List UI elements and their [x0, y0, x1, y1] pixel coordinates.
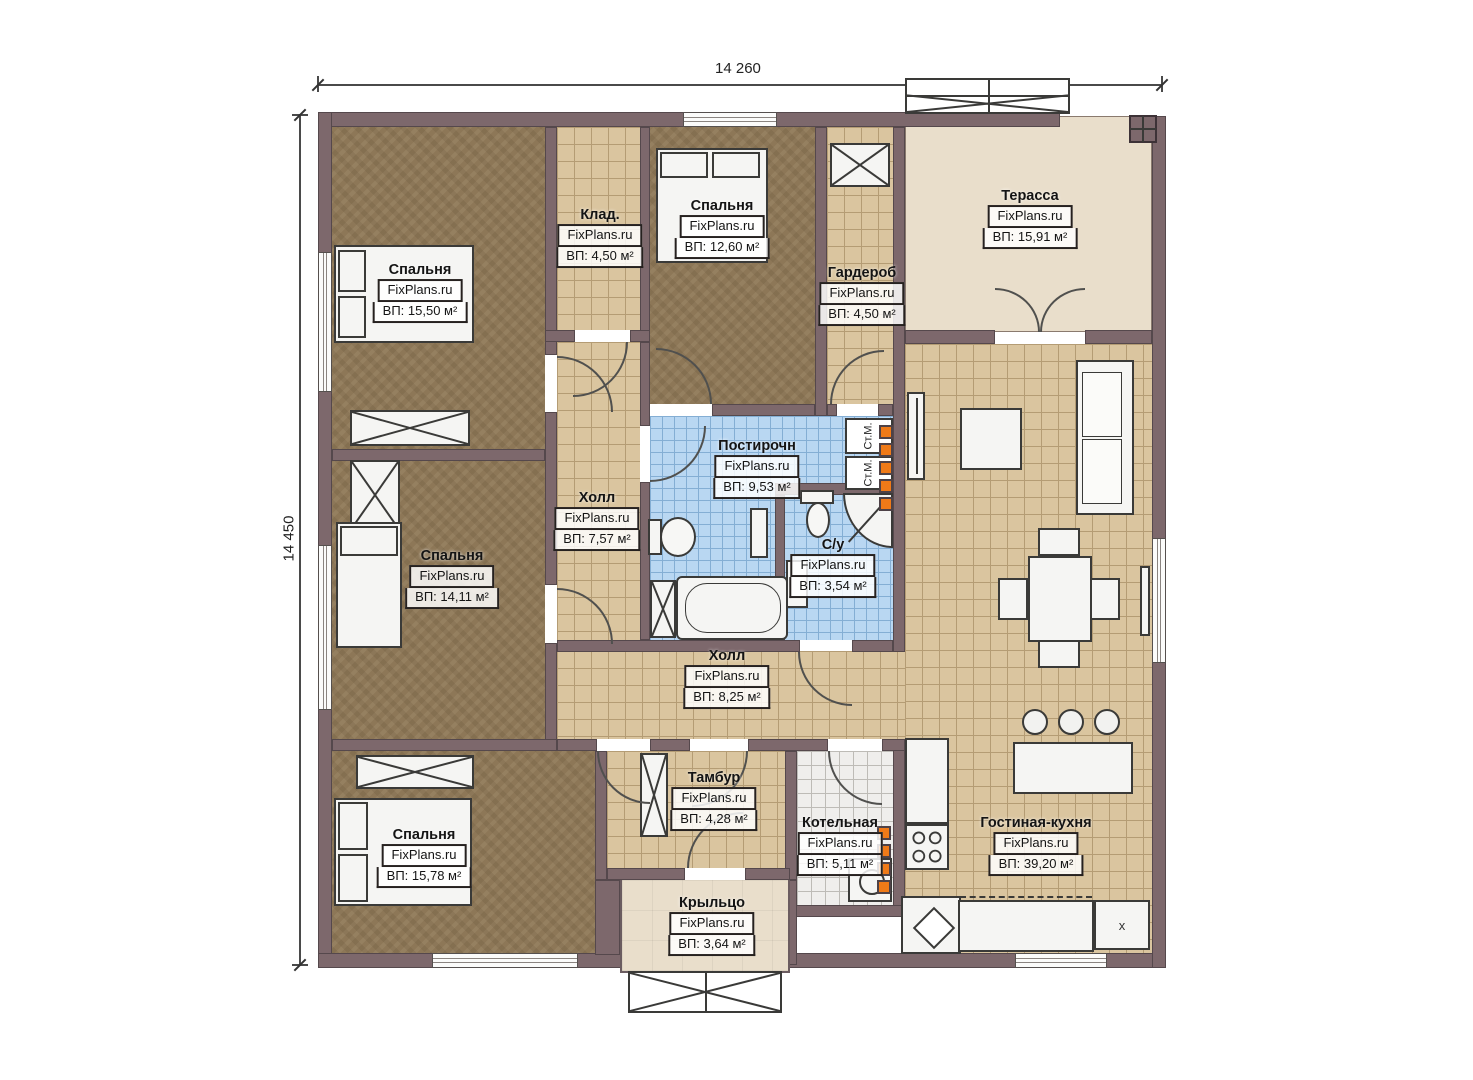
chair	[1090, 578, 1120, 620]
room-name: Спальня	[389, 261, 452, 279]
pillow	[338, 854, 368, 902]
terrace-stairs	[905, 78, 1070, 114]
room-name: Спальня	[393, 826, 456, 844]
room-area: ВП: 4,28 м²	[670, 810, 757, 831]
wardrobe-box	[830, 143, 890, 187]
room-name: Клад.	[580, 206, 619, 224]
room-label-boiler: Котельная FixPlans.ru ВП: 5,11 м²	[797, 814, 883, 876]
cabinet-x: x	[1094, 900, 1150, 950]
room-area: ВП: 4,50 м²	[556, 247, 643, 268]
room-name: Крыльцо	[679, 894, 745, 912]
wardrobe-box	[350, 410, 470, 446]
wall-interior	[332, 739, 557, 751]
room-name: Холл	[579, 489, 615, 507]
kitchen-island	[1013, 742, 1133, 794]
corner-shelf	[650, 580, 676, 638]
room-area: ВП: 15,78 м²	[377, 867, 472, 888]
toilet-bowl	[660, 517, 696, 557]
room-label-porch: Крыльцо FixPlans.ru ВП: 3,64 м²	[668, 894, 755, 956]
watermark: FixPlans.ru	[797, 832, 882, 855]
room-label-bedroom-1: Спальня FixPlans.ru ВП: 15,50 м²	[373, 261, 468, 323]
window-bedroom-1	[318, 252, 332, 392]
wall-interior	[545, 127, 557, 355]
room-area: ВП: 5,11 м²	[797, 855, 883, 876]
wall-interior	[882, 739, 905, 751]
window-bedroom-4	[432, 953, 578, 968]
washer-label: Ст.М.	[863, 422, 875, 449]
bar-stool	[1022, 709, 1048, 735]
washer-label: Ст.М.	[863, 459, 875, 486]
room-label-bedroom-4: Спальня FixPlans.ru ВП: 15,78 м²	[377, 826, 472, 888]
wall-interior	[630, 330, 650, 342]
room-area: ВП: 3,54 м²	[789, 577, 876, 598]
room-area: ВП: 3,64 м²	[668, 935, 755, 956]
room-area: ВП: 8,25 м²	[683, 688, 770, 709]
pillow	[340, 526, 398, 556]
room-label-hall-1: Холл FixPlans.ru ВП: 7,57 м²	[553, 489, 640, 551]
room-name: Спальня	[421, 547, 484, 565]
radiator	[1140, 566, 1150, 636]
chair	[998, 578, 1028, 620]
kitchen-counter	[905, 738, 949, 824]
room-name: Гардероб	[828, 264, 897, 282]
room-name: Котельная	[802, 814, 878, 832]
room-label-living-kitchen: Гостиная-кухня FixPlans.ru ВП: 39,20 м²	[980, 814, 1091, 876]
wall-interior	[545, 643, 557, 751]
pillow	[338, 296, 366, 338]
radiator	[907, 392, 925, 480]
toilet-bowl	[806, 502, 830, 538]
room-label-bedroom-2: Спальня FixPlans.ru ВП: 12,60 м²	[675, 197, 770, 259]
room-area: ВП: 7,57 м²	[553, 530, 640, 551]
room-area: ВП: 14,11 м²	[405, 588, 499, 609]
watermark: FixPlans.ru	[993, 832, 1078, 855]
wall-interior	[878, 404, 893, 416]
room-name: Терасса	[1001, 187, 1059, 205]
wall-interior	[712, 404, 815, 416]
wall-interior	[607, 868, 685, 880]
dimension-height-label: 14 450	[280, 516, 297, 562]
sofa	[1076, 360, 1134, 515]
watermark: FixPlans.ru	[554, 507, 639, 530]
wall-interior	[640, 482, 650, 640]
wall-interior	[650, 739, 690, 751]
dimension-line-left	[299, 115, 301, 966]
room-name: С/у	[822, 536, 845, 554]
chair	[1038, 528, 1080, 556]
pillow	[712, 152, 760, 178]
watermark: FixPlans.ru	[377, 279, 462, 302]
room-name: Постирочн	[718, 437, 796, 455]
room-area: ВП: 39,20 м²	[989, 855, 1084, 876]
wall-interior	[745, 868, 790, 880]
heat-dot	[879, 497, 893, 511]
pillow	[338, 802, 368, 850]
room-area: ВП: 12,60 м²	[675, 238, 770, 259]
room-area: ВП: 9,53 м²	[713, 478, 800, 499]
wall-interior	[893, 127, 905, 652]
wall-interior	[893, 739, 905, 917]
watermark: FixPlans.ru	[987, 205, 1072, 228]
room-label-bedroom-3: Спальня FixPlans.ru ВП: 14,11 м²	[405, 547, 499, 609]
window-bedroom-3	[318, 545, 332, 710]
coffee-table	[960, 408, 1022, 470]
room-label-storage: Клад. FixPlans.ru ВП: 4,50 м²	[556, 206, 643, 268]
room-label-terrace: Терасса FixPlans.ru ВП: 15,91 м²	[983, 187, 1078, 249]
window-living-room	[1152, 538, 1166, 663]
wall-terrace	[1085, 330, 1152, 344]
room-label-bathroom: С/у FixPlans.ru ВП: 3,54 м²	[789, 536, 876, 598]
watermark: FixPlans.ru	[679, 215, 764, 238]
room-label-wardrobe: Гардероб FixPlans.ru ВП: 4,50 м²	[818, 264, 905, 326]
watermark: FixPlans.ru	[684, 665, 769, 688]
cabinet-x-label: x	[1119, 918, 1126, 933]
wall-interior	[748, 739, 828, 751]
watermark: FixPlans.ru	[381, 844, 466, 867]
bathtub	[676, 576, 788, 640]
room-name: Гостиная-кухня	[980, 814, 1091, 832]
chair	[1038, 640, 1080, 668]
wall-interior	[595, 880, 620, 955]
dimension-width-label: 14 260	[715, 60, 761, 77]
room-name: Тамбур	[688, 769, 741, 787]
terrace-pillar	[1130, 116, 1156, 142]
wall-interior	[852, 640, 893, 652]
window-bedroom-2	[683, 112, 777, 127]
heat-dot	[879, 443, 893, 457]
pillow	[338, 250, 366, 292]
watermark: FixPlans.ru	[819, 282, 904, 305]
wall-interior	[785, 751, 797, 880]
wall-interior	[827, 404, 837, 416]
watermark: FixPlans.ru	[714, 455, 799, 478]
counter-edge-dashed	[960, 896, 1092, 898]
wall-interior	[545, 330, 575, 342]
wall-interior	[557, 739, 597, 751]
partition-panel	[750, 508, 768, 558]
corner-sink-cabinet	[901, 896, 961, 954]
bar-stool	[1094, 709, 1120, 735]
room-area: ВП: 15,50 м²	[373, 302, 468, 323]
room-label-hall-2: Холл FixPlans.ru ВП: 8,25 м²	[683, 647, 770, 709]
wall-interior	[785, 905, 905, 917]
wall-terrace	[905, 330, 995, 344]
heat-dot	[877, 880, 891, 894]
stove	[905, 824, 949, 870]
watermark: FixPlans.ru	[669, 912, 754, 935]
floor-plan-canvas: Ст.М. Ст.М. x	[0, 0, 1473, 1080]
room-area: ВП: 15,91 м²	[983, 228, 1078, 249]
room-label-vestibule: Тамбур FixPlans.ru ВП: 4,28 м²	[670, 769, 757, 831]
dining-table	[1028, 556, 1092, 642]
pillow	[660, 152, 708, 178]
room-name: Холл	[709, 647, 745, 665]
wall-interior	[640, 342, 650, 426]
heat-dot	[879, 425, 893, 439]
watermark: FixPlans.ru	[409, 565, 494, 588]
watermark: FixPlans.ru	[557, 224, 642, 247]
window-kitchen	[1015, 953, 1107, 968]
bar-stool	[1058, 709, 1084, 735]
wardrobe-box	[356, 755, 474, 789]
heat-dot	[879, 479, 893, 493]
room-name: Спальня	[691, 197, 754, 215]
wall-exterior-left	[318, 112, 332, 968]
porch-steps	[628, 971, 782, 1013]
watermark: FixPlans.ru	[790, 554, 875, 577]
watermark: FixPlans.ru	[671, 787, 756, 810]
room-area: ВП: 4,50 м²	[818, 305, 905, 326]
wardrobe-box	[350, 460, 400, 530]
heat-dot	[879, 461, 893, 475]
kitchen-counter	[958, 900, 1094, 952]
room-label-laundry: Постирочн FixPlans.ru ВП: 9,53 м²	[713, 437, 800, 499]
